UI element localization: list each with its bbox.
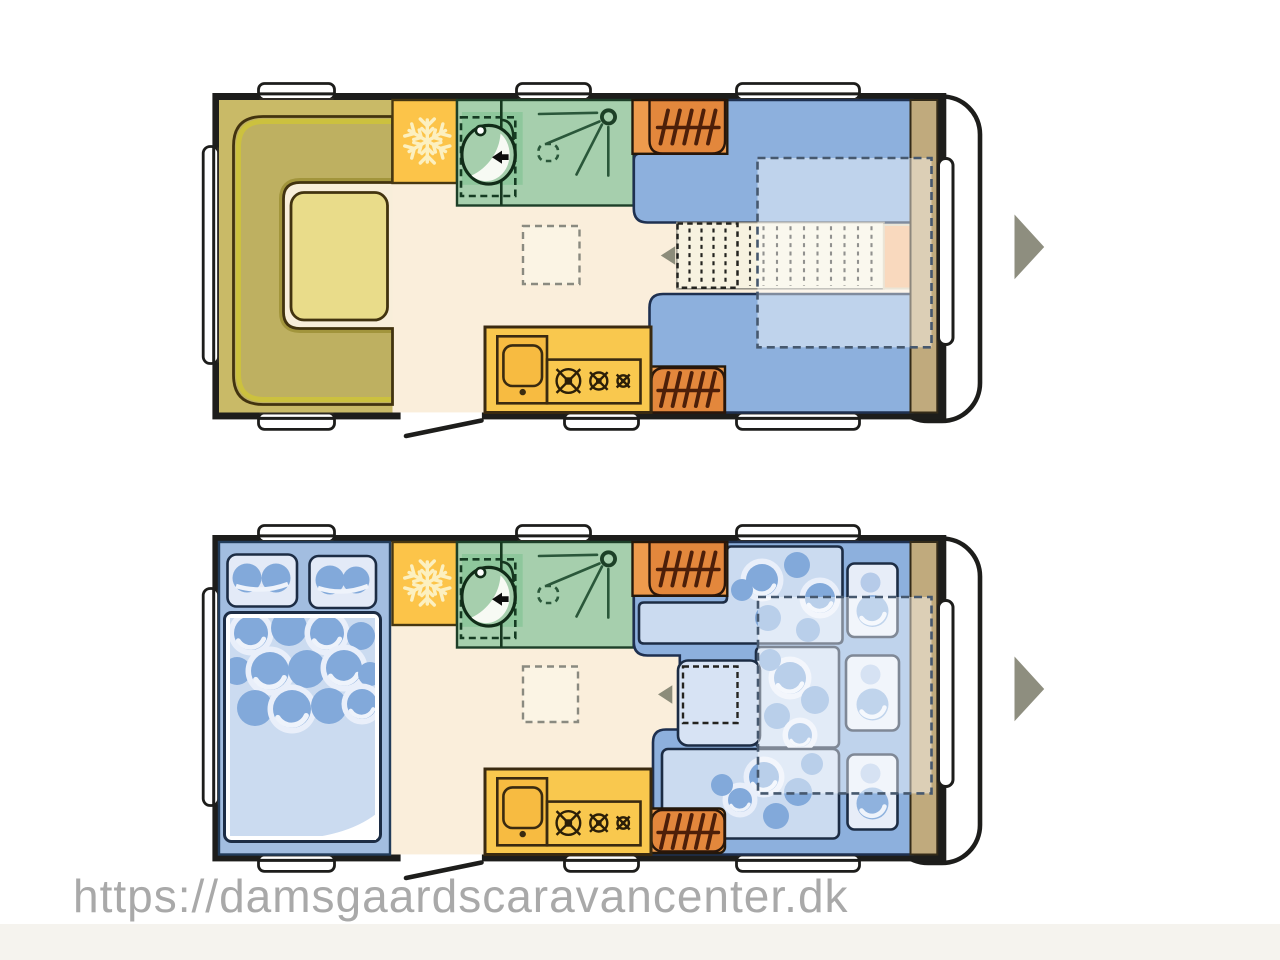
svg-text:https://damsgaardscaravancente: https://damsgaardscaravancenter.dk <box>73 870 849 922</box>
